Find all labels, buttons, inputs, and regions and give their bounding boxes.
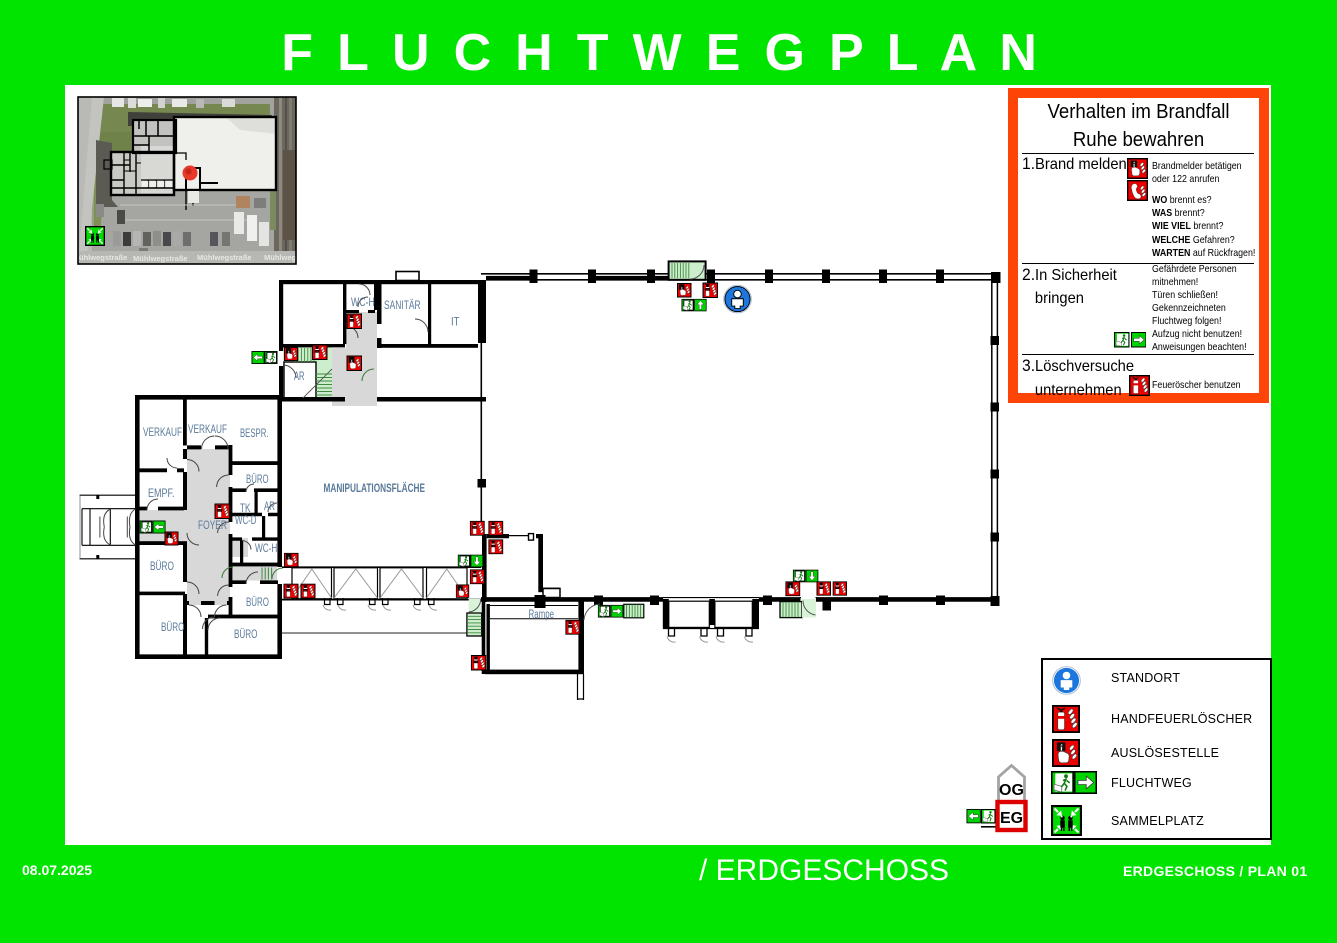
svg-text:Mühlwegstraße: Mühlwegstraße — [197, 253, 252, 262]
svg-text:WC-H: WC-H — [351, 295, 375, 309]
svg-text:OG: OG — [999, 782, 1024, 799]
svg-text:MANIPULATIONSFLÄCHE: MANIPULATIONSFLÄCHE — [324, 480, 426, 495]
svg-text:BÜRO: BÜRO — [150, 559, 174, 573]
svg-text:Mühlweg: Mühlweg — [264, 253, 296, 262]
svg-text:AR: AR — [264, 499, 275, 513]
svg-text:BÜRO: BÜRO — [246, 472, 269, 486]
svg-text:IT: IT — [451, 315, 460, 329]
svg-text:Rampe: Rampe — [529, 609, 555, 621]
svg-text:BÜRO: BÜRO — [246, 595, 269, 609]
svg-text:WC-D: WC-D — [235, 513, 257, 527]
svg-text:ühlwegstraße: ühlwegstraße — [79, 253, 127, 262]
svg-text:BESPR.: BESPR. — [240, 426, 269, 440]
svg-text:SANITÄR: SANITÄR — [384, 298, 421, 312]
svg-text:BÜRO: BÜRO — [234, 627, 258, 641]
svg-text:WC-H: WC-H — [255, 541, 277, 555]
svg-text:EMPF.: EMPF. — [148, 486, 175, 500]
svg-text:AR: AR — [294, 369, 305, 383]
svg-text:Mühlwegstraße: Mühlwegstraße — [133, 254, 188, 263]
svg-text:BÜRO: BÜRO — [161, 620, 185, 634]
svg-text:EG: EG — [1000, 810, 1023, 827]
svg-text:VERKAUF: VERKAUF — [188, 422, 227, 436]
svg-text:FOYER: FOYER — [198, 518, 227, 532]
svg-text:VERKAUF: VERKAUF — [143, 425, 182, 439]
